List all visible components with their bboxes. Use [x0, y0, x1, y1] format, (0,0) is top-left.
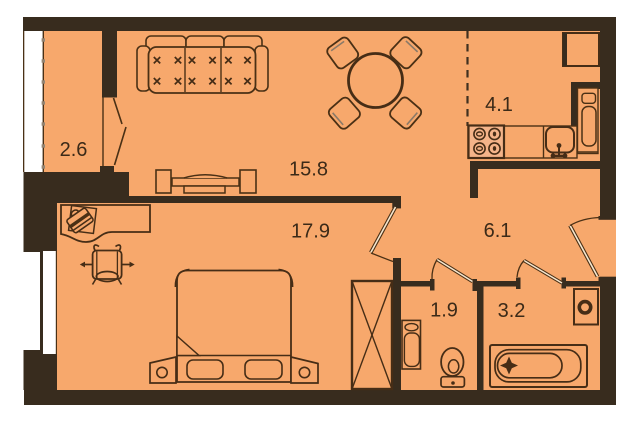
svg-text:1.9: 1.9: [430, 300, 458, 322]
svg-text:4.1: 4.1: [485, 94, 513, 116]
svg-text:6.1: 6.1: [484, 220, 512, 242]
svg-text:17.9: 17.9: [291, 221, 330, 243]
svg-text:3.2: 3.2: [498, 300, 526, 322]
svg-text:15.8: 15.8: [289, 159, 328, 181]
svg-text:2.6: 2.6: [60, 139, 88, 161]
